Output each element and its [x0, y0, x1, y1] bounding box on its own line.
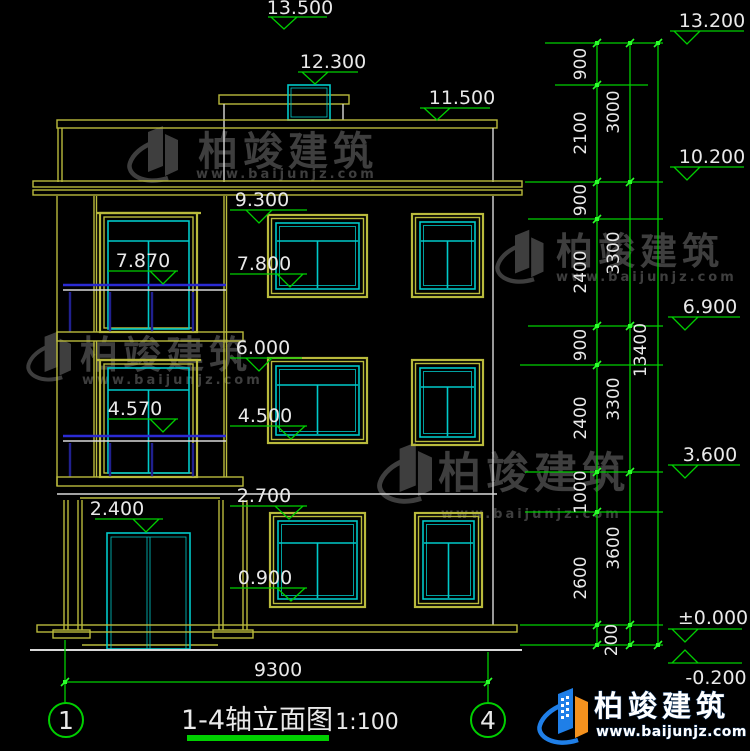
watermark-url: www.baijunjz.com — [82, 373, 263, 388]
right-dimension-chain: 900 2100 900 2400 900 2400 1000 2600 300… — [520, 39, 663, 656]
dim-seg: 3300 — [604, 377, 624, 420]
svg-text:12.300: 12.300 — [300, 51, 366, 73]
dim-seg: 2400 — [571, 396, 591, 439]
dim-seg: 1000 — [571, 470, 591, 513]
watermark-brand: 柏竣建筑 — [438, 449, 630, 499]
level-marker-12300: 12.300 — [298, 51, 366, 84]
svg-text:6.000: 6.000 — [236, 337, 290, 359]
level-marker-6900: 6.900 — [668, 296, 740, 330]
dim-seg: 3000 — [604, 90, 624, 133]
watermark-logo-icon — [28, 332, 71, 380]
watermark-right-lower: 柏竣建筑 www.baijunjz.com — [380, 442, 630, 522]
svg-text:10.200: 10.200 — [679, 146, 745, 168]
svg-text:9.300: 9.300 — [235, 189, 289, 211]
level-marker-3600: 3.600 — [668, 444, 740, 478]
brand-logo-text: 柏竣建筑 — [594, 689, 730, 723]
dim-seg: 900 — [571, 184, 591, 216]
brand-logo-url: www.baijunjz.com — [596, 724, 747, 740]
axis-number: 1 — [58, 706, 74, 735]
svg-text:±0.000: ±0.000 — [678, 607, 748, 629]
level-marker-13200: 13.200 — [670, 10, 745, 44]
plinth-band — [37, 625, 517, 632]
axis-bubble-4: 4 — [471, 703, 505, 737]
svg-text:0.900: 0.900 — [238, 567, 292, 589]
column-footing — [213, 630, 253, 638]
level-marker-2400: 2.400 — [90, 498, 163, 532]
svg-text:2.700: 2.700 — [237, 485, 291, 507]
window-r3-mid — [270, 513, 365, 607]
svg-text:13.500: 13.500 — [267, 0, 333, 19]
window-r2-right — [412, 360, 483, 445]
roof-access-box — [288, 85, 330, 120]
watermark-logo-icon — [497, 230, 543, 282]
svg-text:4.570: 4.570 — [108, 398, 162, 420]
column-footing — [53, 630, 90, 638]
axis-bubble-1: 1 — [49, 703, 83, 737]
dim-seg: 2600 — [571, 556, 591, 599]
title-block: 1-4轴立面图 1:100 — [181, 705, 399, 741]
brand-logo-icon — [539, 688, 588, 743]
level-marker-13500: 13.500 — [267, 0, 333, 29]
parapet-band — [57, 120, 497, 128]
level-marker-minus200: -0.200 — [668, 650, 747, 689]
watermark-url: www.baijunjz.com — [196, 167, 377, 182]
balcony-slab — [57, 477, 243, 486]
drawing-title: 1-4轴立面图 — [181, 705, 333, 736]
svg-text:6.900: 6.900 — [683, 296, 737, 318]
svg-text:7.870: 7.870 — [116, 250, 170, 272]
svg-text:13.200: 13.200 — [679, 10, 745, 32]
dim-seg: 900 — [571, 48, 591, 80]
watermark-logo-icon — [380, 442, 432, 501]
dim-seg: 900 — [571, 329, 591, 361]
level-marker-11500: 11.500 — [420, 87, 495, 120]
window-r3-right — [415, 513, 482, 607]
brand-logo: 柏竣建筑 www.baijunjz.com — [539, 688, 747, 743]
base — [30, 625, 522, 650]
level-marker-4570: 4.570 — [108, 398, 178, 432]
dim-seg: 3300 — [604, 231, 624, 274]
axis-number: 4 — [480, 706, 496, 735]
level-marker-10200: 10.200 — [670, 146, 745, 180]
dim-seg: 2400 — [571, 250, 591, 293]
watermark-logo-icon — [129, 126, 178, 181]
level-marker-0900: 0.900 — [230, 567, 307, 601]
dim-overall-width: 9300 — [254, 659, 302, 681]
window-r1-right — [412, 214, 483, 297]
dim-plinth: 200 — [602, 624, 622, 656]
svg-text:-0.200: -0.200 — [685, 667, 746, 689]
elevation-canvas: 柏竣建筑 www.baijunjz.com 柏竣建筑 www.baijunjz.… — [0, 0, 750, 751]
drawing-scale: 1:100 — [335, 710, 398, 735]
dim-seg: 2100 — [571, 111, 591, 154]
svg-text:2.400: 2.400 — [90, 498, 144, 520]
dim-overall-height: 13400 — [631, 323, 651, 377]
svg-text:7.800: 7.800 — [237, 253, 291, 275]
level-marker-7870: 7.870 — [108, 250, 178, 284]
window-r2-mid — [268, 358, 367, 443]
dim-seg: 3600 — [604, 526, 624, 569]
elevation-drawing: 柏竣建筑 www.baijunjz.com 柏竣建筑 www.baijunjz.… — [0, 0, 750, 751]
svg-text:4.500: 4.500 — [238, 405, 292, 427]
level-marker-zero: ±0.000 — [668, 607, 748, 642]
svg-text:3.600: 3.600 — [683, 444, 737, 466]
watermark-top-center: 柏竣建筑 www.baijunjz.com — [129, 126, 378, 182]
svg-text:11.500: 11.500 — [429, 87, 495, 109]
title-underline — [187, 735, 329, 741]
ground-floor-porch — [53, 500, 253, 649]
